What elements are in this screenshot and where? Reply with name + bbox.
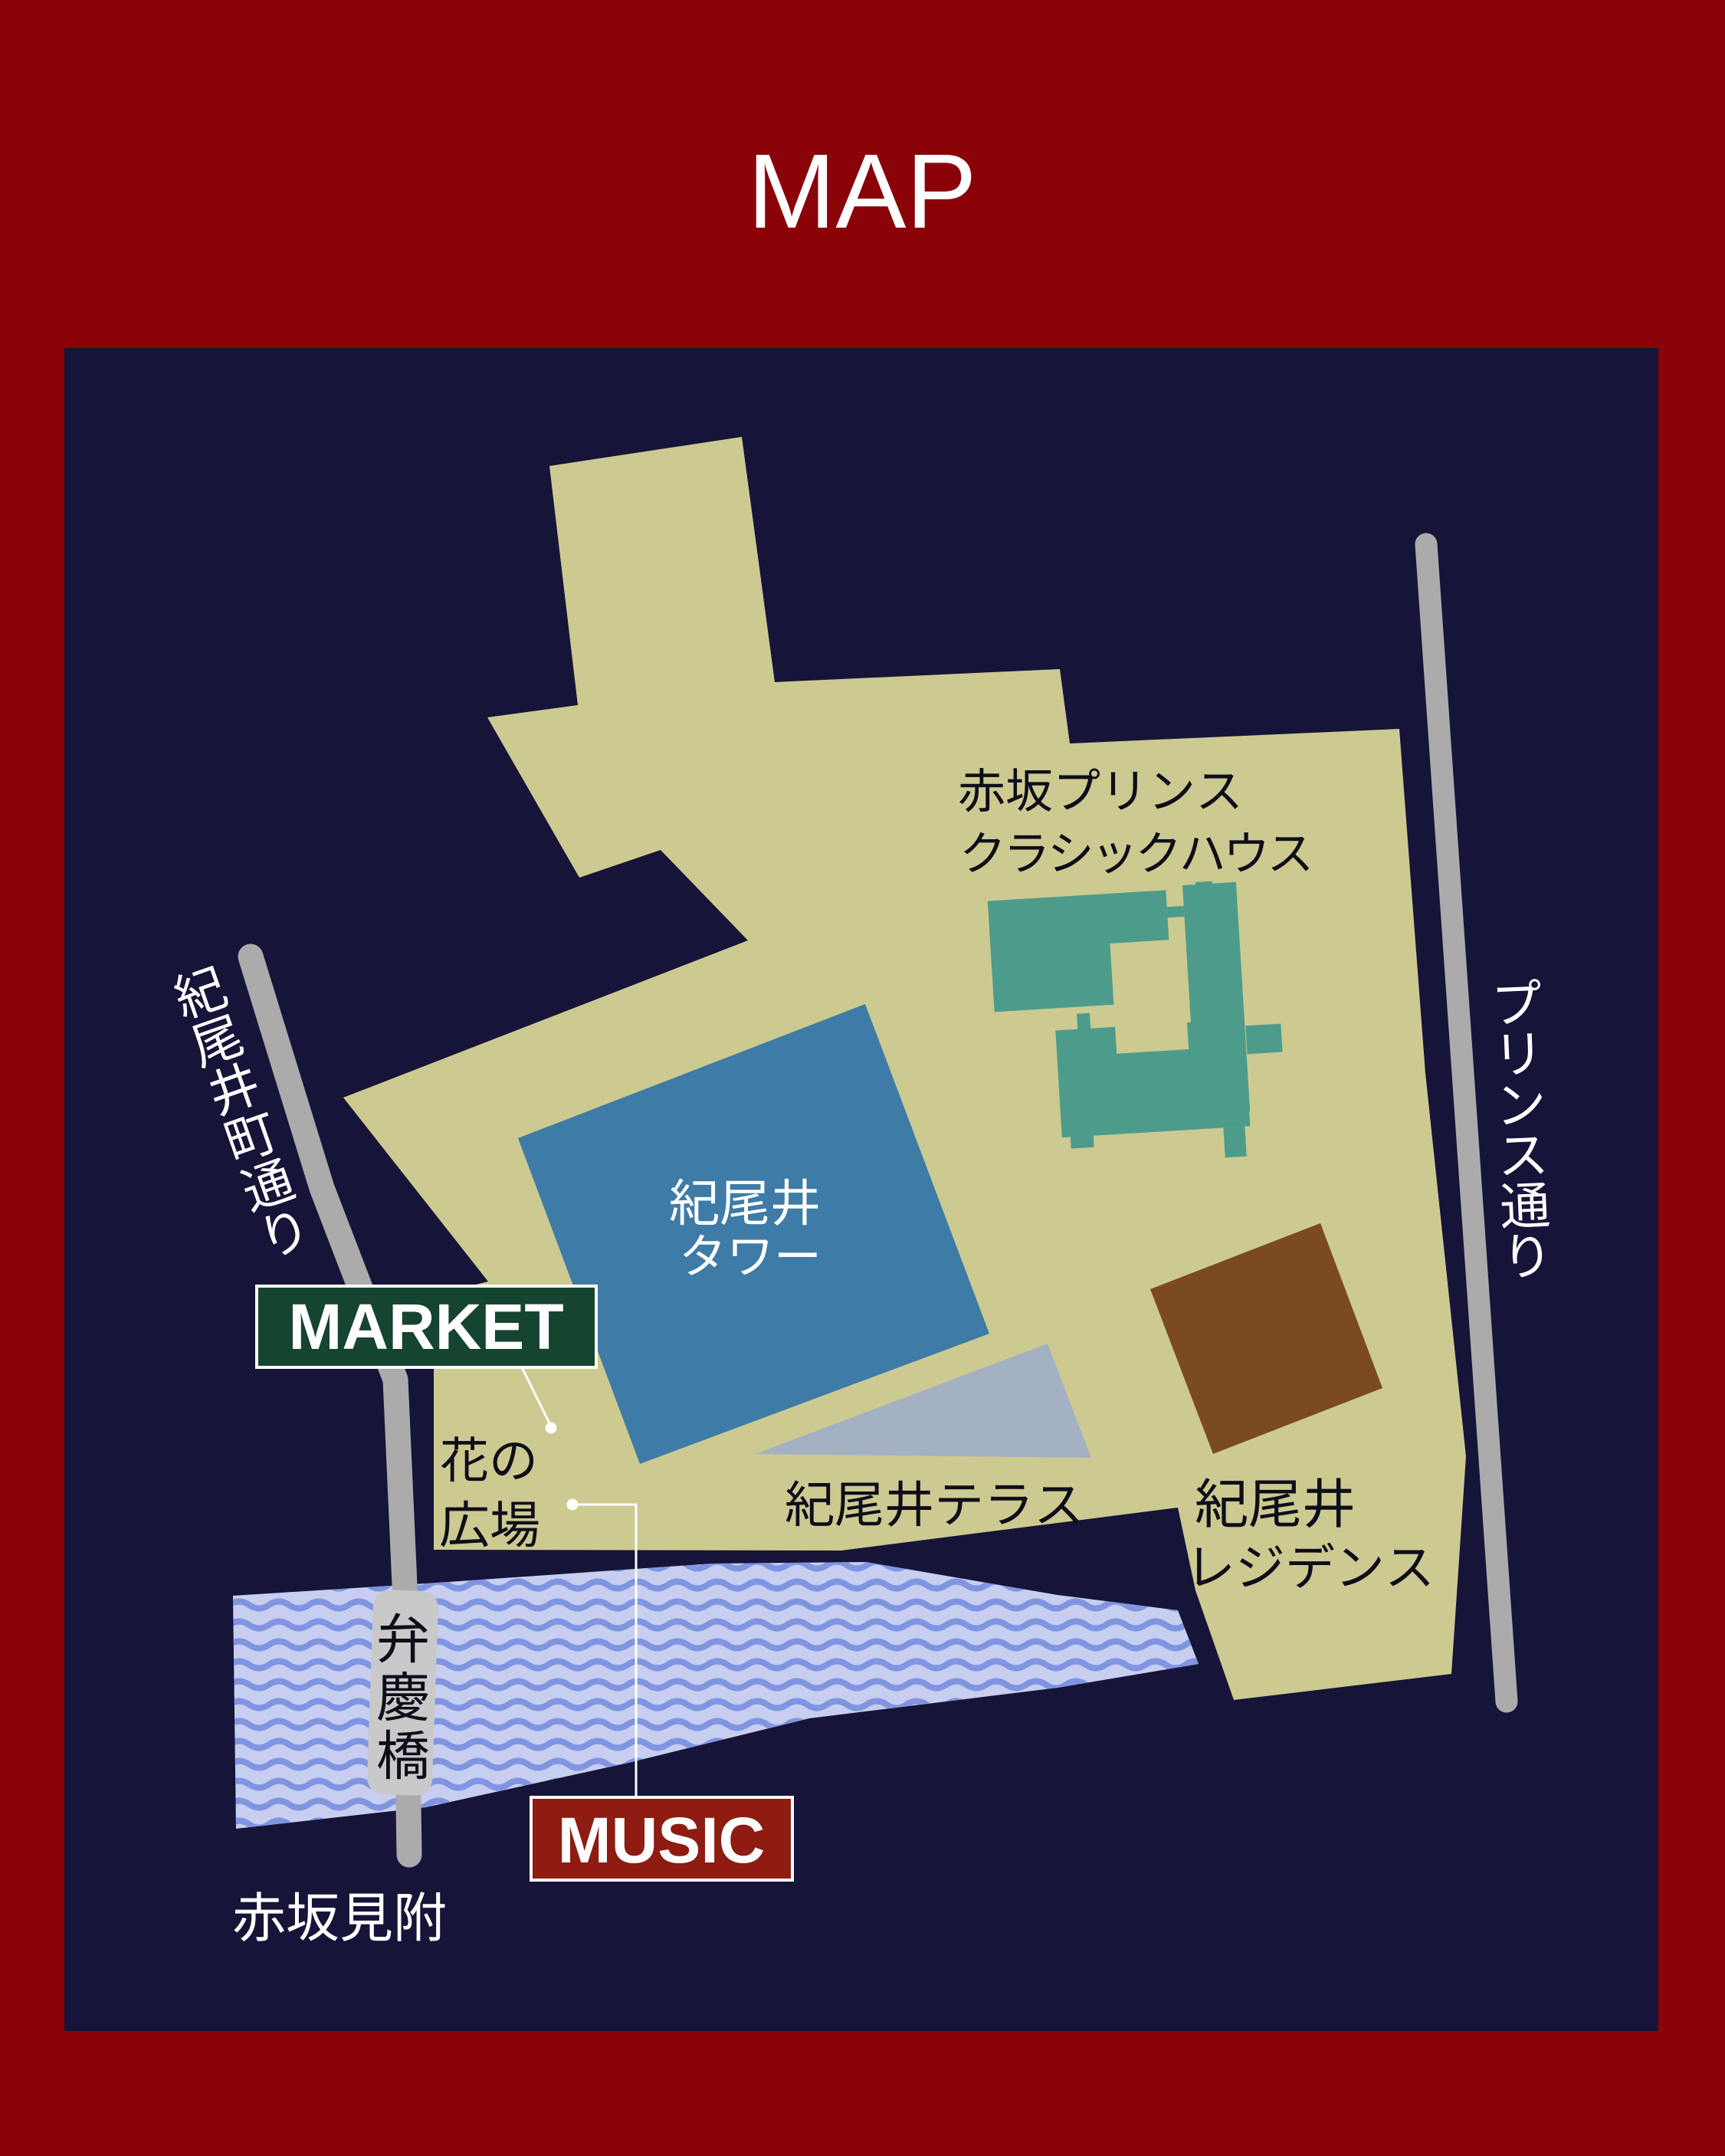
svg-text:MARKET: MARKET bbox=[288, 1291, 563, 1363]
svg-text:MUSIC: MUSIC bbox=[558, 1804, 766, 1876]
svg-text:MAP: MAP bbox=[747, 133, 976, 251]
